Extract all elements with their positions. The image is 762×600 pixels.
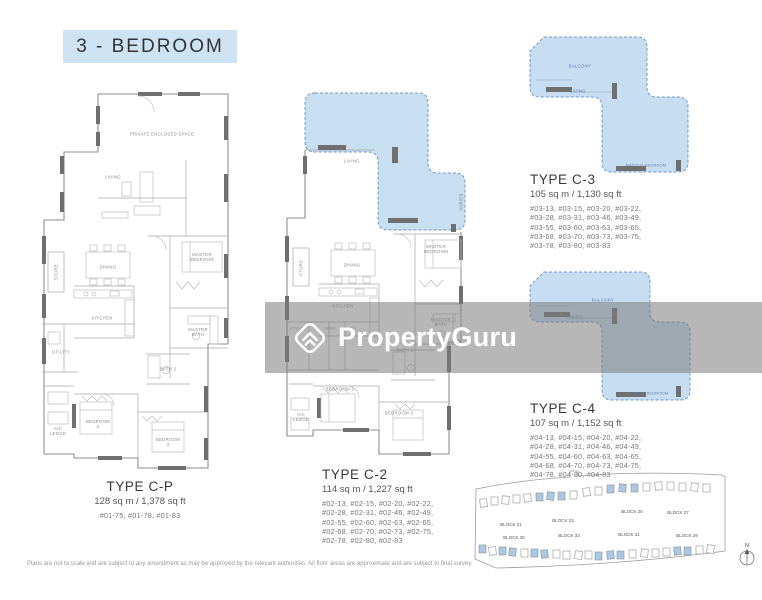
site-plan-drawing: BLOCK 21 BLOCK 23 BLOCK 25 BLOCK 27 BLOC… — [466, 467, 762, 575]
room-label-private-enclosed-space: PRIVATE ENCLOSED SPACE — [130, 131, 195, 136]
type-c4-name: TYPE C-4 — [530, 401, 680, 416]
site-plan: BLOCK 21 BLOCK 23 BLOCK 25 BLOCK 27 BLOC… — [466, 467, 762, 580]
room-label-bedroom2: BEDROOM 2 — [326, 386, 355, 391]
room-label-dining: DINING — [344, 262, 361, 267]
room-label-bedroom3: BEDROOM 3 — [155, 437, 181, 447]
room-label-bath2: BATH 2 — [160, 366, 177, 371]
watermark-band: PropertyGuru — [265, 302, 762, 373]
type-cp-units: #01-75, #01-78, #01-83 — [40, 511, 240, 520]
room-label-living: LIVING — [570, 88, 586, 93]
room-label-bedroom3: BEDROOM 3 — [385, 410, 414, 415]
room-label-master-bedroom: MASTER BEDROOM — [185, 252, 219, 262]
type-c2-units: #02-13, #02-15, #02-20, #02-22, #02-28, … — [322, 499, 472, 546]
room-label-store: STORE — [53, 264, 58, 280]
type-c2-name: TYPE C-2 — [322, 467, 472, 482]
block-label: BLOCK 29 — [676, 533, 698, 538]
room-label-master-bedroom: MASTER BEDROOM — [626, 164, 667, 169]
room-label-varies: VARIES — [458, 193, 463, 210]
north-compass-icon: N — [740, 543, 754, 565]
room-label-kitchen: KITCHEN — [92, 315, 113, 320]
room-label-master-bedroom: MASTER BEDROOM — [628, 392, 669, 397]
block-label: BLOCK 31 — [618, 532, 640, 537]
compass-n-label: N — [745, 543, 749, 549]
highlight-shape — [530, 37, 688, 172]
room-label-ac-ledge: A/C LEDGE — [48, 426, 68, 436]
diagram-type-c3: BALCONY LIVING MASTER BEDROOM — [528, 30, 718, 175]
room-label-master-bath: MASTER BATH — [185, 327, 211, 337]
page-title: 3 - BEDROOM — [63, 30, 237, 63]
room-label-ac-ledge: A/C LEDGE — [291, 412, 311, 422]
block-label: BLOCK 27 — [667, 510, 689, 515]
room-label-dining: DINING — [100, 264, 117, 269]
block-label: BLOCK 33 — [558, 533, 580, 538]
floorplan-type-c2: LIVING VARIES STORE DINING MASTER BEDROO… — [283, 86, 483, 470]
type-c3-units: #03-13, #03-15, #03-20, #03-22, #03-28, … — [530, 204, 680, 251]
block-label: BLOCK 25 — [621, 509, 643, 514]
type-c4-units: #04-13, #04-15, #04-20, #04-22, #04-28, … — [530, 433, 680, 480]
room-label-master-bedroom: MASTER BEDROOM — [419, 244, 453, 254]
floorplan-c2-drawing — [283, 86, 483, 470]
caption-type-c2: TYPE C-2 114 sq m / 1,227 sq ft #02-13, … — [322, 467, 472, 546]
type-c2-area: 114 sq m / 1,227 sq ft — [322, 484, 472, 495]
type-cp-area: 128 sq m / 1,378 sq ft — [40, 496, 240, 507]
room-label-living: LIVING — [344, 158, 360, 163]
watermark-brand-text: PropertyGuru — [338, 322, 517, 353]
caption-type-c3: TYPE C-3 105 sq m / 1,130 sq ft #03-13, … — [530, 172, 680, 251]
room-label-utility: UTILITY — [52, 349, 70, 354]
disclaimer-text: Plans are not to scale and are subject t… — [27, 561, 472, 567]
caption-type-c4: TYPE C-4 107 sq m / 1,152 sq ft #04-13, … — [530, 401, 680, 480]
type-c4-area: 107 sq m / 1,152 sq ft — [530, 418, 680, 429]
highlight-open-terrace — [305, 93, 465, 230]
block-label: BLOCK 35 — [503, 535, 525, 540]
door-swings — [102, 96, 166, 406]
room-label-balcony: BALCONY — [569, 63, 592, 68]
type-cp-name: TYPE C-P — [40, 479, 240, 494]
type-c3-name: TYPE C-3 — [530, 172, 680, 187]
wall-segments — [42, 92, 228, 470]
room-label-store: STORE — [298, 260, 303, 276]
block-label: BLOCK 21 — [500, 522, 522, 527]
room-label-living: LIVING — [105, 174, 121, 179]
diagram-c3-drawing — [528, 30, 718, 175]
type-c3-area: 105 sq m / 1,130 sq ft — [530, 189, 680, 200]
room-label-bedroom2: BEDROOM 2 — [85, 419, 111, 429]
floorplan-type-cp: PRIVATE ENCLOSED SPACE LIVING STORE DINI… — [38, 86, 238, 478]
propertyguru-logo-icon — [291, 319, 329, 357]
floorplan-cp-drawing — [38, 86, 238, 478]
block-label: BLOCK 23 — [552, 518, 574, 523]
brochure-page: 3 - BEDROOM — [0, 0, 762, 600]
caption-type-cp: TYPE C-P 128 sq m / 1,378 sq ft #01-75, … — [40, 479, 240, 520]
